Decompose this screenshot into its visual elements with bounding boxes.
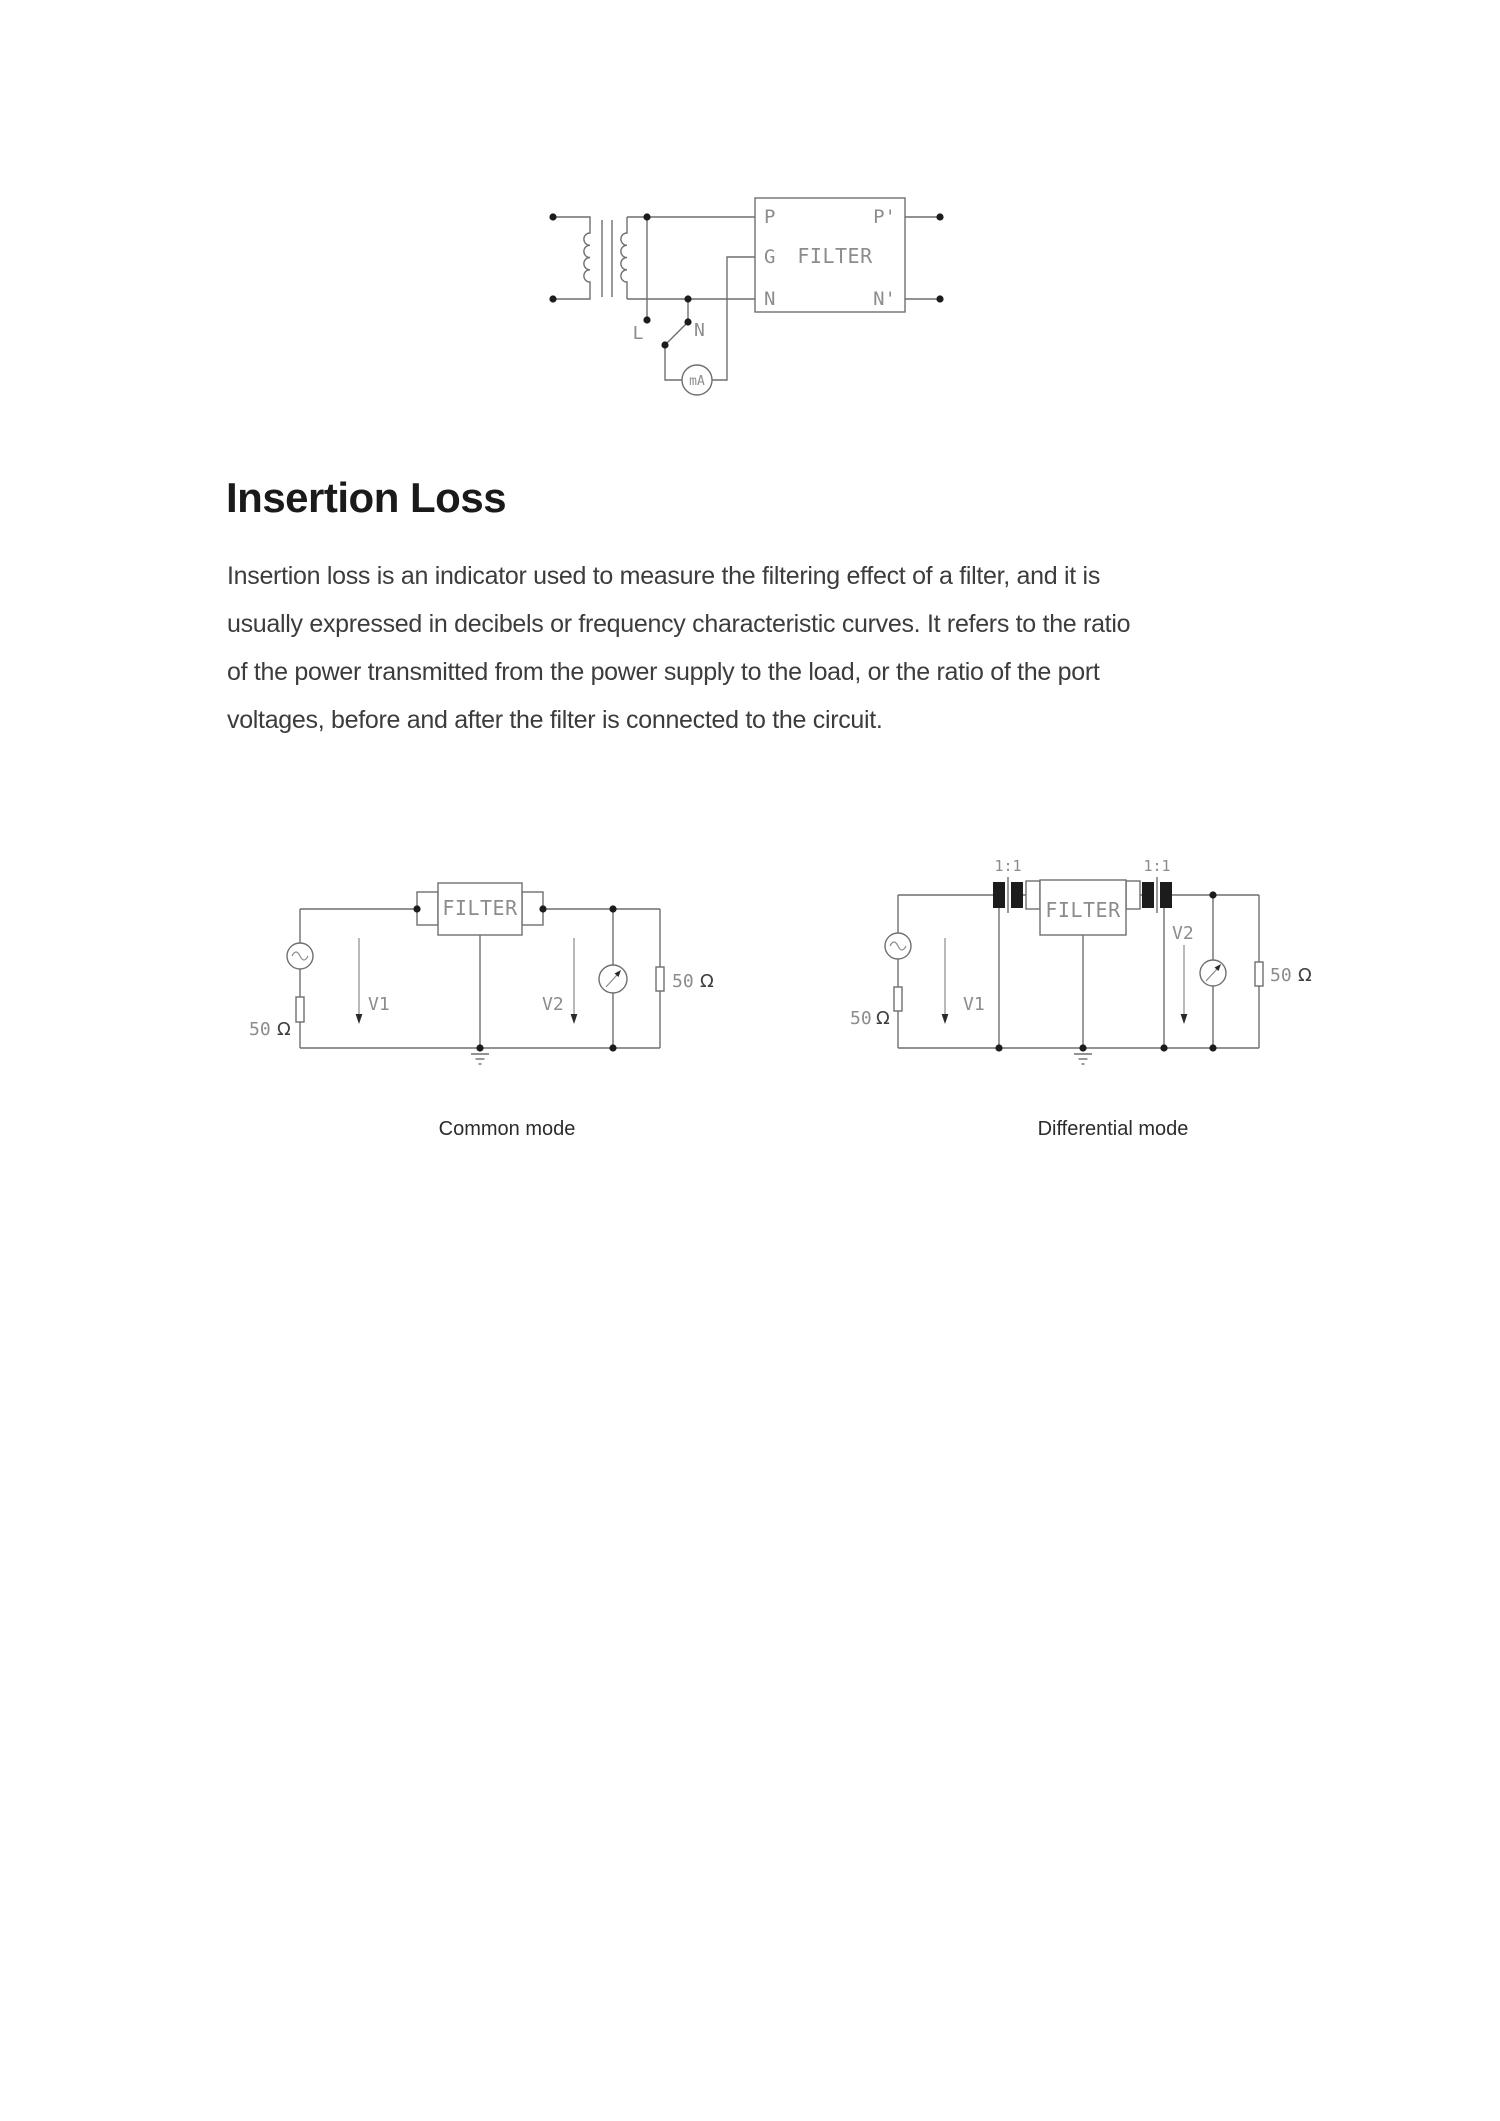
source-resistor-icon xyxy=(296,997,304,1022)
filter-port-p-out-label: P' xyxy=(873,206,896,228)
ac-source-icon xyxy=(287,943,313,969)
page-title: Insertion Loss xyxy=(226,474,506,522)
source-resistor-value: 50 xyxy=(850,1008,872,1029)
load-resistor-ohm-symbol: Ω xyxy=(1298,965,1312,986)
filter-port-p-label: P xyxy=(764,206,775,228)
load-resistor-icon xyxy=(656,967,664,991)
earth-ground-icon xyxy=(1074,1054,1092,1064)
filter-right-tab xyxy=(1126,881,1140,909)
paragraph-line: voltages, before and after the filter is… xyxy=(227,696,1130,744)
source-resistor-value: 50 xyxy=(249,1019,271,1040)
milliammeter-label: mA xyxy=(689,374,705,389)
right-transformer-ratio-label: 1:1 xyxy=(1143,857,1170,875)
v1-label: V1 xyxy=(368,994,390,1015)
filter-left-tab xyxy=(1026,881,1040,909)
paragraph-line: Insertion loss is an indicator used to m… xyxy=(227,552,1130,600)
isolation-transformer xyxy=(553,217,627,299)
secondary-winding xyxy=(621,217,627,299)
transformer-core xyxy=(602,220,612,297)
source-resistor-ohm-symbol: Ω xyxy=(876,1008,890,1029)
differential-mode-circuit-diagram: 50 Ω V1 1:1 FILTER 1:1 xyxy=(830,855,1330,1150)
source-resistor-icon xyxy=(894,987,902,1011)
load-resistor-ohm-symbol: Ω xyxy=(700,971,714,992)
left-isolation-transformer-icon xyxy=(993,877,1023,913)
leakage-current-test-circuit-diagram: mA P G N FILTER P' N' L N xyxy=(540,190,980,440)
document-page: mA P G N FILTER P' N' L N Insertion Loss… xyxy=(0,0,1500,2121)
filter-box-label: FILTER xyxy=(797,244,873,268)
filter-port-g-label: G xyxy=(764,246,775,268)
v2-arrow-icon xyxy=(571,938,578,1024)
load-resistor-icon xyxy=(1255,962,1263,986)
meter-to-ground-port-wire xyxy=(712,257,755,380)
right-isolation-transformer-icon xyxy=(1142,877,1172,913)
load-resistor-value: 50 xyxy=(672,971,694,992)
ac-source-icon xyxy=(885,933,911,959)
v1-arrow-icon xyxy=(356,938,363,1024)
paragraph-line: of the power transmitted from the power … xyxy=(227,648,1130,696)
v2-arrow-icon xyxy=(1181,945,1188,1024)
primary-winding xyxy=(553,217,590,299)
filter-box-label: FILTER xyxy=(442,896,518,920)
body-paragraph: Insertion loss is an indicator used to m… xyxy=(227,552,1130,744)
voltmeter-icon xyxy=(599,965,627,993)
filter-box-label: FILTER xyxy=(1045,898,1121,922)
voltmeter-icon xyxy=(1200,960,1226,986)
line-terminal-label: L xyxy=(633,323,644,344)
neutral-terminal-label: N xyxy=(694,320,705,341)
selector-switch-blade xyxy=(665,324,686,345)
left-transformer-ratio-label: 1:1 xyxy=(994,857,1021,875)
v2-label: V2 xyxy=(542,994,564,1015)
load-resistor-value: 50 xyxy=(1270,965,1292,986)
filter-port-n-label: N xyxy=(764,288,775,310)
switch-to-meter-wire xyxy=(665,345,682,380)
filter-port-n-out-label: N' xyxy=(873,288,896,310)
common-mode-caption: Common mode xyxy=(387,1118,627,1141)
earth-ground-icon xyxy=(471,1054,489,1064)
paragraph-line: usually expressed in decibels or frequen… xyxy=(227,600,1130,648)
v1-arrow-icon xyxy=(942,938,949,1024)
source-resistor-ohm-symbol: Ω xyxy=(277,1019,291,1040)
differential-mode-caption: Differential mode xyxy=(993,1118,1233,1141)
v2-label: V2 xyxy=(1172,923,1194,944)
common-mode-circuit-diagram: 50 Ω V1 FILTER V2 xyxy=(230,855,760,1150)
v1-label: V1 xyxy=(963,994,985,1015)
